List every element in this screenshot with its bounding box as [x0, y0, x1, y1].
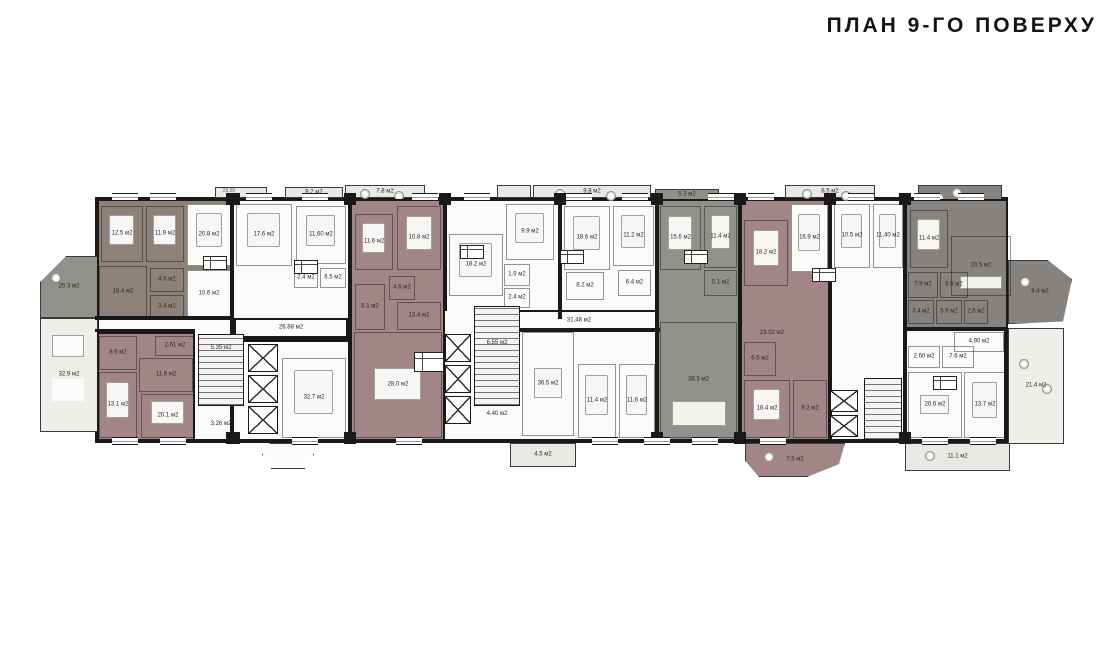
elevator-shaft	[445, 334, 471, 362]
room: 13.1 м2	[99, 372, 137, 438]
room: 8.2 м2	[566, 272, 604, 300]
elevator-shaft	[445, 396, 471, 424]
room: 2.6 м2	[964, 300, 988, 324]
window	[592, 437, 618, 445]
room: 10.6 м2	[187, 270, 231, 318]
window	[692, 437, 718, 445]
room: 11.6 м2	[619, 364, 655, 438]
area-label: 4.40 м2	[487, 411, 508, 417]
wall-segment	[655, 199, 659, 441]
area-label: 20.1 м2	[158, 413, 179, 420]
wall-pier	[226, 432, 240, 444]
bed-furniture	[711, 215, 730, 249]
room: 36.5 м2	[522, 332, 574, 436]
window	[112, 193, 138, 201]
room: 11.60 м2	[296, 206, 346, 264]
unit-info-table	[684, 250, 708, 264]
corridor-left: 26.88 м2	[234, 318, 348, 338]
area-label: 11.40 м2	[876, 233, 900, 240]
area-label: 28.0 м2	[388, 382, 409, 389]
area-label: 11.6 м2	[364, 239, 384, 246]
window	[396, 437, 422, 445]
window	[970, 437, 996, 445]
room: 3.4 м2	[150, 295, 184, 318]
area-label: 6.9 м2	[945, 282, 962, 289]
room: 11.6 м2	[355, 214, 393, 270]
elevator-shaft	[830, 415, 858, 437]
area-label: 20.8 м2	[199, 232, 220, 239]
area-label: 11.4 м2	[587, 398, 607, 405]
plant-furniture	[1019, 359, 1029, 369]
wall-pier	[824, 193, 836, 205]
area-label: 20.3 м2	[59, 284, 80, 291]
area-label: 31.48 м2	[567, 318, 591, 325]
room: 38.3 м2	[660, 322, 737, 438]
window	[848, 193, 874, 201]
room: 4.6 м2	[150, 268, 184, 292]
window	[292, 437, 318, 445]
room: 13.7 м2	[964, 372, 1006, 438]
area-label: 38.3 м2	[688, 377, 709, 384]
wall-segment	[95, 329, 195, 332]
area-label: 4.90 м2	[969, 339, 990, 346]
area-label: 1.9 м2	[508, 272, 525, 279]
area-label: 17.6 м2	[254, 232, 275, 239]
unit-info-table	[203, 256, 227, 270]
wall-pier	[734, 193, 746, 205]
area-label: 21.4 м2	[1026, 383, 1047, 390]
wall-pier	[651, 193, 663, 205]
area-label: 36.5 м2	[538, 381, 559, 388]
room: 5.1 м2	[704, 270, 737, 296]
area-label: 11.1 м2	[947, 454, 967, 461]
stair-core-center	[474, 306, 520, 406]
wall-segment	[443, 199, 447, 311]
bed-furniture	[917, 219, 939, 250]
area-label: 11.60 м2	[309, 232, 333, 239]
window	[150, 193, 176, 201]
area-label: 18.4 м2	[113, 289, 134, 296]
unit-info-table	[812, 268, 836, 282]
window	[464, 193, 490, 201]
wall-pier	[439, 193, 451, 205]
area-label: 2.6 м2	[967, 309, 984, 316]
area-label: 4.5 м2	[534, 452, 551, 459]
room: 11.4 м2	[704, 206, 737, 268]
elevator-shaft	[248, 344, 278, 372]
window	[566, 193, 592, 201]
bed-furniture	[294, 370, 332, 414]
room: 6.5 м2	[320, 268, 346, 288]
area-label: 32.9 м2	[59, 372, 80, 379]
area-label: 12.5 м2	[112, 231, 133, 238]
area-label: 3.4 м2	[158, 303, 175, 310]
bed-furniture	[196, 213, 222, 247]
unit-info-table	[460, 245, 484, 259]
room: 12.5 м2	[101, 206, 143, 262]
room: 18.2 м2	[744, 220, 788, 286]
area-label: 13.7 м2	[975, 402, 996, 409]
area-label: 3.26 м2	[211, 421, 232, 427]
balcony-top-4	[497, 185, 531, 198]
window	[760, 437, 786, 445]
elevator-shaft	[830, 390, 858, 412]
area-label: 6.4 м2	[626, 280, 643, 287]
wall-segment	[903, 199, 907, 441]
bed-furniture	[247, 213, 280, 247]
balcony-right-angled: 8.4 м2	[1008, 260, 1072, 324]
wall-segment	[905, 327, 1008, 331]
area-label: 6.6 м2	[751, 356, 768, 363]
area-label: 18.2 м2	[756, 250, 777, 257]
area-label: 18.4 м2	[757, 406, 778, 413]
window	[748, 193, 774, 201]
area-label: 9.2 м2	[801, 406, 818, 413]
floor-plan-sheet: ПЛАН 9-ГО ПОВЕРХУ 9.2 м27.8 м29.8 м25.3 …	[0, 0, 1111, 657]
area-label: 16.9 м2	[799, 235, 820, 242]
area-label: 5.1 м2	[712, 280, 729, 287]
window	[246, 193, 272, 201]
area-label: 10.5 м2	[842, 233, 863, 240]
room: 5.9 м2	[936, 300, 962, 324]
room: 18.4 м2	[744, 380, 790, 438]
room: 11.9 м2	[146, 206, 184, 262]
room: 16.9 м2	[791, 204, 828, 272]
unit-info-table	[294, 260, 318, 274]
room: 6.9 м2	[940, 272, 968, 298]
room: 6.1 м2	[355, 284, 385, 330]
bed-furniture	[585, 375, 607, 415]
room: 10.5 м2	[834, 204, 870, 268]
wall-pier	[899, 432, 911, 444]
area-label: 8.4 м2	[1031, 289, 1048, 296]
bed-furniture	[668, 216, 692, 251]
area-label: 13.1 м2	[108, 402, 129, 409]
bed-furniture	[841, 214, 862, 249]
dimension-label: 29.85	[223, 188, 236, 194]
wall-segment	[95, 316, 232, 320]
area-label: 11.6 м2	[627, 398, 647, 405]
plant-furniture	[764, 452, 774, 462]
bed-furniture	[753, 230, 779, 266]
wall-segment	[348, 199, 352, 441]
area-label: 11.4 м2	[919, 236, 939, 243]
balcony-bottom-mauve: 7.5 м2	[745, 443, 845, 477]
area-label: 10.6 м2	[199, 291, 220, 298]
area-label: 5.3 м2	[678, 191, 695, 198]
window	[160, 437, 186, 445]
area-label: 32.7 м2	[304, 395, 325, 402]
area-label: 11.2 м2	[623, 233, 643, 240]
wall-segment	[738, 199, 742, 441]
room: 7.9 м2	[908, 272, 938, 298]
room: 18.2 м2	[449, 234, 503, 296]
balcony-bottom-right: 11.1 м2	[905, 443, 1010, 471]
plant-furniture	[802, 189, 812, 199]
area-label: 4.6 м2	[158, 277, 175, 284]
bed-furniture	[406, 216, 432, 251]
area-label: 18.2 м2	[466, 262, 487, 269]
room: 9.2 м2	[793, 380, 827, 438]
window	[644, 437, 670, 445]
room: 8.6 м2	[99, 336, 137, 370]
wall-pier	[734, 432, 746, 444]
room: 6.4 м2	[618, 270, 651, 296]
bed-furniture	[106, 382, 128, 418]
room: 28.0 м2	[354, 332, 442, 438]
area-label: 7.6 м2	[949, 354, 966, 361]
window	[708, 193, 734, 201]
plant-furniture	[1020, 277, 1030, 287]
unit-info-table	[933, 376, 957, 390]
room: 11.40 м2	[873, 204, 903, 268]
area-label: 2.60 м2	[914, 354, 935, 361]
terrace-left-lower: 32.9 м2	[40, 318, 98, 432]
area-label: 7.5 м2	[786, 457, 803, 464]
elevator-shaft	[445, 365, 471, 393]
room: 4.90 м2	[954, 332, 1004, 352]
wall-pier	[344, 432, 356, 444]
area-label: 15.6 м2	[670, 235, 691, 242]
bed-furniture	[879, 214, 896, 249]
elevator-shaft	[248, 375, 278, 403]
area-label: 11.6 м2	[156, 372, 176, 379]
wall-segment	[520, 328, 660, 332]
room: 10.8 м2	[397, 206, 441, 270]
wall-pier	[226, 193, 240, 205]
room: 6.6 м2	[744, 342, 776, 376]
room: 13.4 м2	[397, 302, 441, 330]
area-label: 9.9 м2	[521, 229, 538, 236]
tables2-furniture	[52, 335, 83, 357]
sofa-furniture	[672, 401, 726, 426]
balcony-left-upper: 20.3 м2	[40, 256, 98, 318]
area-label: 3.4 м2	[912, 309, 929, 316]
area-label: 4.6 м2	[393, 285, 410, 292]
room: 4.6 м2	[389, 276, 415, 300]
window	[914, 193, 940, 201]
room: 17.6 м2	[236, 204, 292, 266]
unit-info-table	[560, 250, 584, 264]
bed-furniture	[573, 216, 600, 251]
area-label: 23.02 м2	[760, 330, 784, 336]
bed-furniture	[798, 214, 820, 251]
room: 11.4 м2	[910, 210, 948, 268]
room: 9.9 м2	[506, 204, 554, 260]
room: 20.1 м2	[141, 394, 195, 438]
balcony-bottom-4: 4.5 м2	[510, 443, 576, 467]
area-label: 7.9 м2	[914, 282, 931, 289]
room: 2.61 м2	[155, 336, 195, 356]
wall-pier	[899, 193, 911, 205]
room: 2.60 м2	[908, 346, 940, 368]
area-label: 18.6 м2	[577, 235, 598, 242]
room: 32.7 м2	[282, 358, 346, 438]
area-label: 20.5 м2	[971, 263, 992, 270]
wall-segment	[232, 338, 350, 342]
room: 3.4 м2	[908, 300, 934, 324]
window	[958, 193, 984, 201]
area-label: 26.88 м2	[279, 325, 303, 332]
window	[412, 193, 438, 201]
plant-furniture	[51, 273, 61, 283]
bed-furniture	[306, 215, 336, 246]
plant-furniture	[925, 451, 935, 461]
window	[922, 437, 948, 445]
room: 11.2 м2	[613, 206, 654, 266]
terrace-right: 21.4 м2	[1008, 328, 1064, 444]
unit-info-table	[414, 352, 444, 372]
area-label: 20.6 м2	[925, 402, 946, 409]
area-label: 11.9 м2	[155, 231, 175, 238]
elevator-shaft	[248, 406, 278, 434]
bed-furniture	[626, 375, 647, 415]
area-label: 5.9 м2	[940, 309, 957, 316]
area-label: 2.61 м2	[165, 343, 186, 350]
window	[112, 437, 138, 445]
area-label: 10.8 м2	[409, 235, 430, 242]
floor-plan: 9.2 м27.8 м29.8 м25.3 м28.5 м220.3 м232.…	[0, 0, 1111, 657]
area-label: 11.4 м2	[710, 234, 730, 241]
area-label: 6.5 м2	[324, 275, 341, 282]
area-label: 8.6 м2	[109, 350, 126, 357]
window	[622, 193, 648, 201]
room: 1.9 м2	[504, 264, 530, 286]
bed-furniture	[972, 382, 997, 418]
wall-pier	[554, 193, 566, 205]
balcony-bottom-small	[262, 443, 314, 469]
stair-core-right	[864, 378, 902, 440]
area-label: 7.8 м2	[376, 188, 393, 195]
bed-furniture	[753, 389, 780, 420]
area-label: 6.1 м2	[361, 304, 378, 311]
bed-furniture	[621, 215, 645, 247]
room: 2.4 м2	[504, 288, 530, 308]
area-label: 8.2 м2	[576, 283, 593, 290]
area-label: 2.4 м2	[297, 275, 314, 282]
room: 18.4 м2	[99, 266, 147, 318]
wall-pier	[344, 193, 356, 205]
area-label: 13.4 м2	[409, 313, 430, 320]
window	[302, 193, 328, 201]
area-label: 6.55 м2	[487, 340, 508, 346]
area-label: 2.4 м2	[508, 295, 525, 302]
area-label: 5.35 м2	[211, 345, 232, 351]
room: 11.6 м2	[139, 358, 193, 392]
plant-furniture	[360, 189, 370, 199]
room: 11.4 м2	[578, 364, 616, 438]
